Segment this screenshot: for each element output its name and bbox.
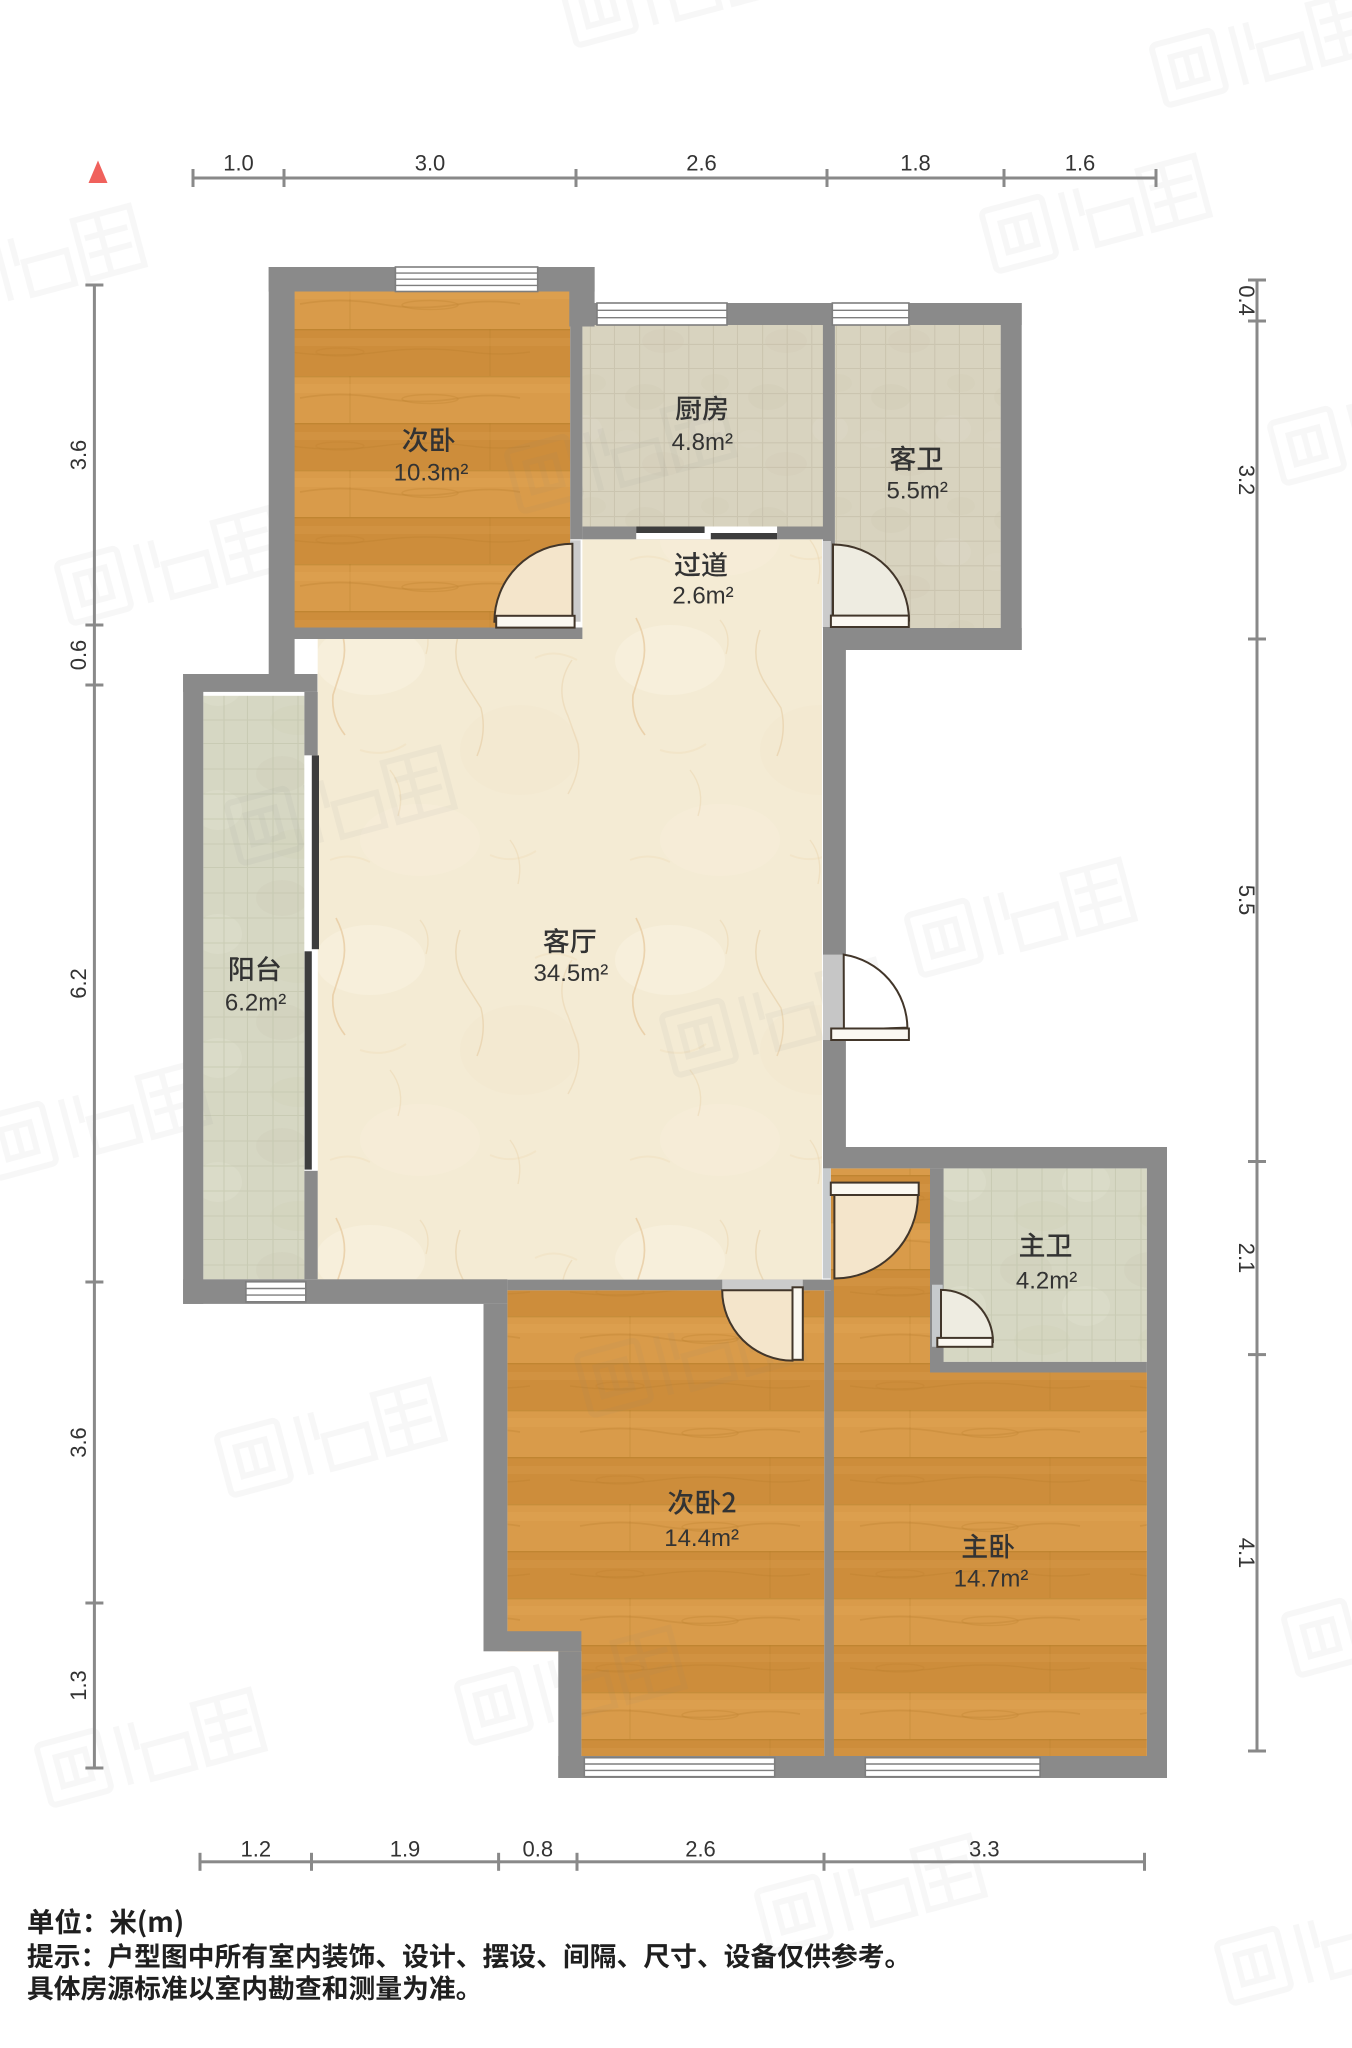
svg-text:34.5m²: 34.5m² [534, 960, 609, 987]
svg-text:10.3m²: 10.3m² [394, 460, 469, 487]
svg-text:3.6: 3.6 [66, 1427, 91, 1458]
svg-text:3.6: 3.6 [66, 440, 91, 471]
svg-text:4.2m²: 4.2m² [1016, 1268, 1077, 1295]
svg-text:1.9: 1.9 [390, 1837, 421, 1862]
svg-text:3.3: 3.3 [969, 1837, 1000, 1862]
svg-text:6.2: 6.2 [66, 968, 91, 999]
svg-text:0.6: 0.6 [66, 640, 91, 671]
svg-text:1.2: 1.2 [241, 1837, 272, 1862]
svg-text:4.8m²: 4.8m² [672, 429, 733, 456]
svg-text:6.2m²: 6.2m² [225, 990, 286, 1017]
svg-text:5.5m²: 5.5m² [887, 478, 948, 505]
svg-text:1.6: 1.6 [1065, 151, 1096, 176]
svg-text:0.8: 0.8 [523, 1837, 554, 1862]
svg-text:5.5: 5.5 [1234, 885, 1259, 916]
svg-text:3.2: 3.2 [1234, 465, 1259, 496]
svg-text:2.6: 2.6 [686, 151, 717, 176]
svg-text:0.4: 0.4 [1234, 285, 1259, 316]
svg-text:14.4m²: 14.4m² [664, 1525, 739, 1552]
svg-text:3.0: 3.0 [415, 151, 446, 176]
svg-text:1.8: 1.8 [900, 151, 931, 176]
svg-text:1.3: 1.3 [66, 1670, 91, 1701]
svg-text:2.1: 2.1 [1234, 1243, 1259, 1274]
svg-text:4.1: 4.1 [1234, 1538, 1259, 1569]
svg-text:2.6: 2.6 [685, 1837, 716, 1862]
svg-text:2.6m²: 2.6m² [672, 583, 733, 610]
svg-text:1.0: 1.0 [223, 151, 254, 176]
svg-text:14.7m²: 14.7m² [954, 1566, 1029, 1593]
